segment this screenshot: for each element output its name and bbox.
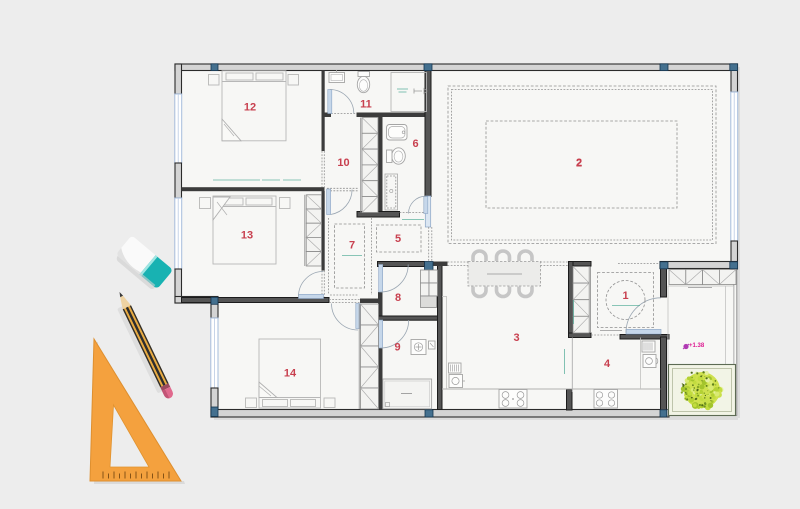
svg-text:3: 3 [513, 332, 519, 344]
svg-text:+1.38: +1.38 [689, 343, 705, 349]
svg-text:12: 12 [244, 102, 256, 114]
svg-text:5: 5 [395, 233, 401, 245]
svg-text:14: 14 [284, 368, 297, 380]
svg-text:13: 13 [241, 230, 253, 242]
svg-text:9: 9 [394, 342, 400, 354]
svg-text:11: 11 [360, 99, 372, 111]
svg-text:4: 4 [604, 358, 611, 370]
svg-text:2: 2 [576, 158, 582, 170]
svg-text:10: 10 [337, 157, 349, 169]
svg-text:1: 1 [622, 290, 628, 302]
svg-text:7: 7 [349, 240, 355, 252]
svg-text:6: 6 [412, 138, 418, 150]
svg-text:8: 8 [395, 292, 401, 304]
